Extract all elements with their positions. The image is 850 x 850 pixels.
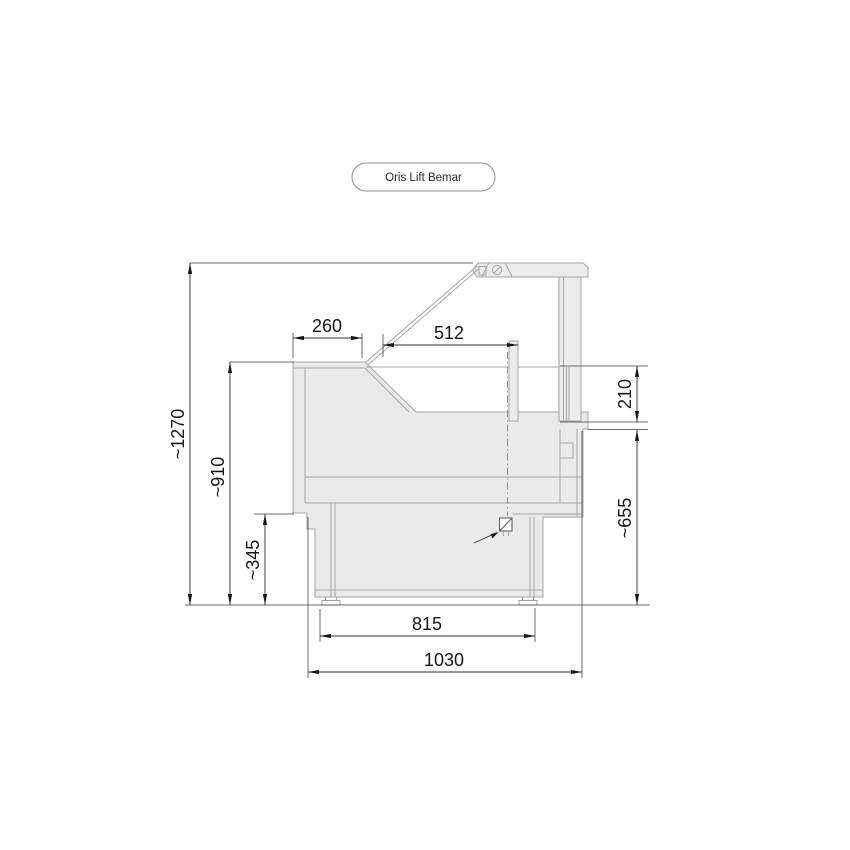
dim-base-depth-label: 815 bbox=[412, 614, 442, 634]
canopy-assembly bbox=[473, 263, 589, 421]
canopy bbox=[473, 263, 589, 277]
dim-glass-width: 512 bbox=[383, 323, 518, 347]
dim-front-top-depth: 260 bbox=[293, 316, 362, 340]
dim-front-panel-height: ~345 bbox=[243, 514, 267, 605]
lift-column bbox=[509, 341, 518, 421]
counter-body bbox=[293, 362, 588, 605]
dim-overall-depth: 1030 bbox=[308, 650, 582, 674]
product-label-pill: Oris Lift Bemar bbox=[352, 163, 495, 191]
dim-body-height: ~910 bbox=[208, 362, 232, 605]
left-foot bbox=[322, 597, 340, 605]
dim-total-height-label: ~1270 bbox=[168, 409, 188, 460]
dim-pass-opening-label: 210 bbox=[615, 379, 635, 409]
dim-front-top-depth-label: 260 bbox=[312, 316, 342, 336]
right-foot bbox=[519, 597, 537, 605]
body-outline bbox=[293, 362, 588, 597]
dim-pass-opening: 210 bbox=[615, 366, 639, 422]
drawing-page: Oris Lift Bemar bbox=[0, 0, 850, 850]
dim-serve-counter-height: ~655 bbox=[615, 430, 639, 605]
dim-glass-width-label: 512 bbox=[434, 323, 464, 343]
dim-front-panel-height-label: ~345 bbox=[243, 540, 263, 581]
dim-serve-counter-height-label: ~655 bbox=[615, 498, 635, 539]
dim-total-height: ~1270 bbox=[168, 263, 192, 605]
dim-overall-depth-label: 1030 bbox=[424, 650, 464, 670]
technical-drawing-canvas: Oris Lift Bemar bbox=[0, 0, 850, 850]
product-label: Oris Lift Bemar bbox=[385, 172, 462, 184]
dim-body-height-label: ~910 bbox=[208, 457, 228, 498]
dim-base-depth: 815 bbox=[320, 614, 535, 638]
rear-post bbox=[559, 277, 581, 421]
